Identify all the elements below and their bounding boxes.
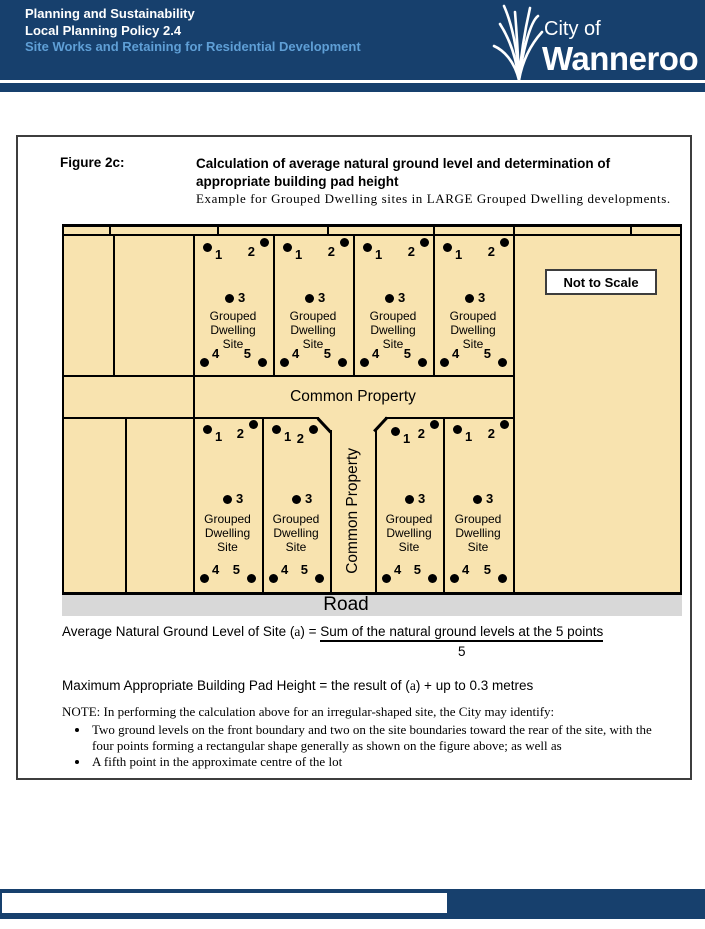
ground-level-point-4-label: 4 xyxy=(394,563,401,576)
ground-level-point-3-label: 3 xyxy=(318,291,325,304)
ground-level-point-3-dot xyxy=(385,294,394,303)
ground-level-point-2-dot xyxy=(309,425,318,434)
grouped-dwelling-site-label: GroupedDwellingSite xyxy=(434,309,512,351)
ground-level-point-4-dot xyxy=(360,358,369,367)
ground-level-point-4-dot xyxy=(200,358,209,367)
header-band: Planning and Sustainability Local Planni… xyxy=(0,0,705,80)
ground-level-point-3-label: 3 xyxy=(486,492,493,505)
ground-level-point-4-dot xyxy=(269,574,278,583)
policy-subtitle: Site Works and Retaining for Residential… xyxy=(25,39,361,56)
note-bullet: A fifth point in the approximate centre … xyxy=(90,754,668,770)
rear-lot-tick xyxy=(109,224,111,236)
ground-level-point-3-label: 3 xyxy=(236,492,243,505)
ground-level-point-2-label: 2 xyxy=(297,432,304,445)
ground-level-point-5-dot xyxy=(498,574,507,583)
note-section: NOTE: In performing the calculation abov… xyxy=(62,704,668,770)
ground-level-point-5-dot xyxy=(315,574,324,583)
grass-tree-icon xyxy=(492,2,544,82)
ground-level-point-1-label: 1 xyxy=(375,248,382,261)
ground-level-point-1-label: 1 xyxy=(284,430,291,443)
footer-inset-box xyxy=(2,893,447,913)
ground-level-point-4-dot xyxy=(382,574,391,583)
grouped-dwelling-site: 12345GroupedDwellingSite xyxy=(274,237,352,375)
ground-level-point-3-label: 3 xyxy=(398,291,405,304)
rear-lot-tick xyxy=(327,224,329,236)
header-separator-bar xyxy=(0,83,705,92)
ground-level-point-5-dot xyxy=(258,358,267,367)
grouped-dwelling-site: 12345GroupedDwellingSite xyxy=(194,419,261,591)
ground-level-point-2-label: 2 xyxy=(328,245,335,258)
ground-level-point-5-dot xyxy=(428,574,437,583)
grouped-dwelling-site-label: GroupedDwellingSite xyxy=(274,309,352,351)
ground-level-point-5-dot xyxy=(247,574,256,583)
ground-level-point-1-dot xyxy=(283,243,292,252)
department-title: Planning and Sustainability xyxy=(25,6,361,23)
ground-level-point-3-dot xyxy=(223,495,232,504)
ground-level-point-4-label: 4 xyxy=(281,563,288,576)
formula-text: ) + up to 0.3 metres xyxy=(416,678,533,693)
ground-level-point-1-dot xyxy=(363,243,372,252)
figure-number: Figure 2c: xyxy=(60,155,125,170)
ground-level-point-4-dot xyxy=(450,574,459,583)
ground-level-point-2-dot xyxy=(500,420,509,429)
max-pad-height-formula: Maximum Appropriate Building Pad Height … xyxy=(62,678,533,694)
ground-level-point-1-dot xyxy=(391,427,400,436)
grouped-dwelling-site-label: GroupedDwellingSite xyxy=(444,512,512,554)
ground-level-point-1-dot xyxy=(272,425,281,434)
ground-level-point-1-label: 1 xyxy=(403,432,410,445)
ground-level-point-5-dot xyxy=(498,358,507,367)
fraction-denominator: 5 xyxy=(320,642,603,659)
ground-level-point-3-dot xyxy=(225,294,234,303)
ground-level-point-2-label: 2 xyxy=(488,245,495,258)
lot-boundary-line xyxy=(62,375,515,377)
ground-level-point-3-dot xyxy=(305,294,314,303)
ground-level-point-4-label: 4 xyxy=(212,563,219,576)
common-property-strip-label: Common Property xyxy=(344,448,362,574)
road-label: Road xyxy=(316,594,376,616)
ground-level-point-2-dot xyxy=(420,238,429,247)
ground-level-point-5-label: 5 xyxy=(484,563,491,576)
grouped-dwelling-site: 12345GroupedDwellingSite xyxy=(444,419,512,591)
plan-left-border xyxy=(62,224,64,594)
ground-level-point-1-dot xyxy=(443,243,452,252)
grouped-dwelling-site-label: GroupedDwellingSite xyxy=(263,512,329,554)
ground-level-point-3-dot xyxy=(473,495,482,504)
ground-level-point-3-dot xyxy=(465,294,474,303)
not-to-scale-box: Not to Scale xyxy=(545,269,657,295)
ground-level-point-2-label: 2 xyxy=(248,245,255,258)
ground-level-point-3-label: 3 xyxy=(418,492,425,505)
grouped-dwelling-site: 12345GroupedDwellingSite xyxy=(434,237,512,375)
header-titles: Planning and Sustainability Local Planni… xyxy=(25,6,361,56)
plan-top-border xyxy=(62,224,682,227)
ground-level-point-2-label: 2 xyxy=(418,427,425,440)
average-ngl-formula: Average Natural Ground Level of Site (a)… xyxy=(62,624,603,659)
policy-title: Local Planning Policy 2.4 xyxy=(25,23,361,40)
ground-level-point-5-label: 5 xyxy=(414,563,421,576)
ground-level-point-2-label: 2 xyxy=(408,245,415,258)
lot-boundary-line xyxy=(125,417,127,593)
ground-level-point-2-label: 2 xyxy=(488,427,495,440)
note-intro: NOTE: In performing the calculation abov… xyxy=(62,704,668,720)
grouped-dwelling-site: 12345GroupedDwellingSite xyxy=(376,419,442,591)
ground-level-point-1-label: 1 xyxy=(465,430,472,443)
figure-title-line2: appropriate building pad height xyxy=(196,173,676,191)
ground-level-point-3-label: 3 xyxy=(305,492,312,505)
ground-level-point-1-label: 1 xyxy=(215,248,222,261)
figure-subtitle: Example for Grouped Dwelling sites in LA… xyxy=(196,191,671,207)
lot-boundary-line xyxy=(113,234,115,377)
formula-text: ) = xyxy=(300,624,320,639)
grouped-dwelling-site-label: GroupedDwellingSite xyxy=(194,309,272,351)
fraction-numerator: Sum of the natural ground levels at the … xyxy=(320,624,603,642)
ground-level-point-1-dot xyxy=(453,425,462,434)
ground-level-point-2-dot xyxy=(340,238,349,247)
note-bullet: Two ground levels on the front boundary … xyxy=(90,722,668,754)
ground-level-point-2-dot xyxy=(500,238,509,247)
ground-level-point-1-label: 1 xyxy=(295,248,302,261)
formula-text: Average Natural Ground Level of Site ( xyxy=(62,624,294,639)
common-property-strip: Common Property xyxy=(331,431,375,591)
lot-boundary-line xyxy=(513,234,515,593)
ground-level-point-3-label: 3 xyxy=(478,291,485,304)
rear-boundary-line xyxy=(62,234,682,236)
fraction: Sum of the natural ground levels at the … xyxy=(320,624,603,659)
logo-city-of: City of xyxy=(544,18,601,41)
figure-title: Calculation of average natural ground le… xyxy=(196,155,676,191)
ground-level-point-1-label: 1 xyxy=(455,248,462,261)
ground-level-point-5-dot xyxy=(418,358,427,367)
grouped-dwelling-site-label: GroupedDwellingSite xyxy=(354,309,432,351)
ground-level-point-1-label: 1 xyxy=(215,430,222,443)
ground-level-point-5-dot xyxy=(338,358,347,367)
ground-level-point-3-label: 3 xyxy=(238,291,245,304)
figure-title-line1: Calculation of average natural ground le… xyxy=(196,155,676,173)
ground-level-point-5-label: 5 xyxy=(301,563,308,576)
rear-lot-tick xyxy=(217,224,219,236)
logo-city-name: Wanneroo xyxy=(542,40,698,78)
grouped-dwelling-site: 12345GroupedDwellingSite xyxy=(263,419,329,591)
ground-level-point-4-dot xyxy=(440,358,449,367)
ground-level-point-2-dot xyxy=(260,238,269,247)
rear-lot-tick xyxy=(630,224,632,236)
grouped-dwelling-site-label: GroupedDwellingSite xyxy=(376,512,442,554)
document-page: Planning and Sustainability Local Planni… xyxy=(0,0,705,929)
ground-level-point-4-label: 4 xyxy=(462,563,469,576)
grouped-dwelling-site: 12345GroupedDwellingSite xyxy=(354,237,432,375)
ground-level-point-4-dot xyxy=(200,574,209,583)
ground-level-point-2-label: 2 xyxy=(237,427,244,440)
ground-level-point-3-dot xyxy=(292,495,301,504)
formula-text: Maximum Appropriate Building Pad Height … xyxy=(62,678,410,693)
grouped-dwelling-site: 12345GroupedDwellingSite xyxy=(194,237,272,375)
plan-right-border xyxy=(680,224,682,594)
ground-level-point-5-label: 5 xyxy=(233,563,240,576)
grouped-dwelling-site-label: GroupedDwellingSite xyxy=(194,512,261,554)
road-band: Road xyxy=(62,592,682,616)
ground-level-point-2-dot xyxy=(249,420,258,429)
ground-level-point-3-dot xyxy=(405,495,414,504)
ground-level-point-1-dot xyxy=(203,243,212,252)
common-property-band-label: Common Property xyxy=(195,378,511,416)
ground-level-point-1-dot xyxy=(203,425,212,434)
ground-level-point-4-dot xyxy=(280,358,289,367)
note-bullets: Two ground levels on the front boundary … xyxy=(62,722,668,770)
ground-level-point-2-dot xyxy=(430,420,439,429)
